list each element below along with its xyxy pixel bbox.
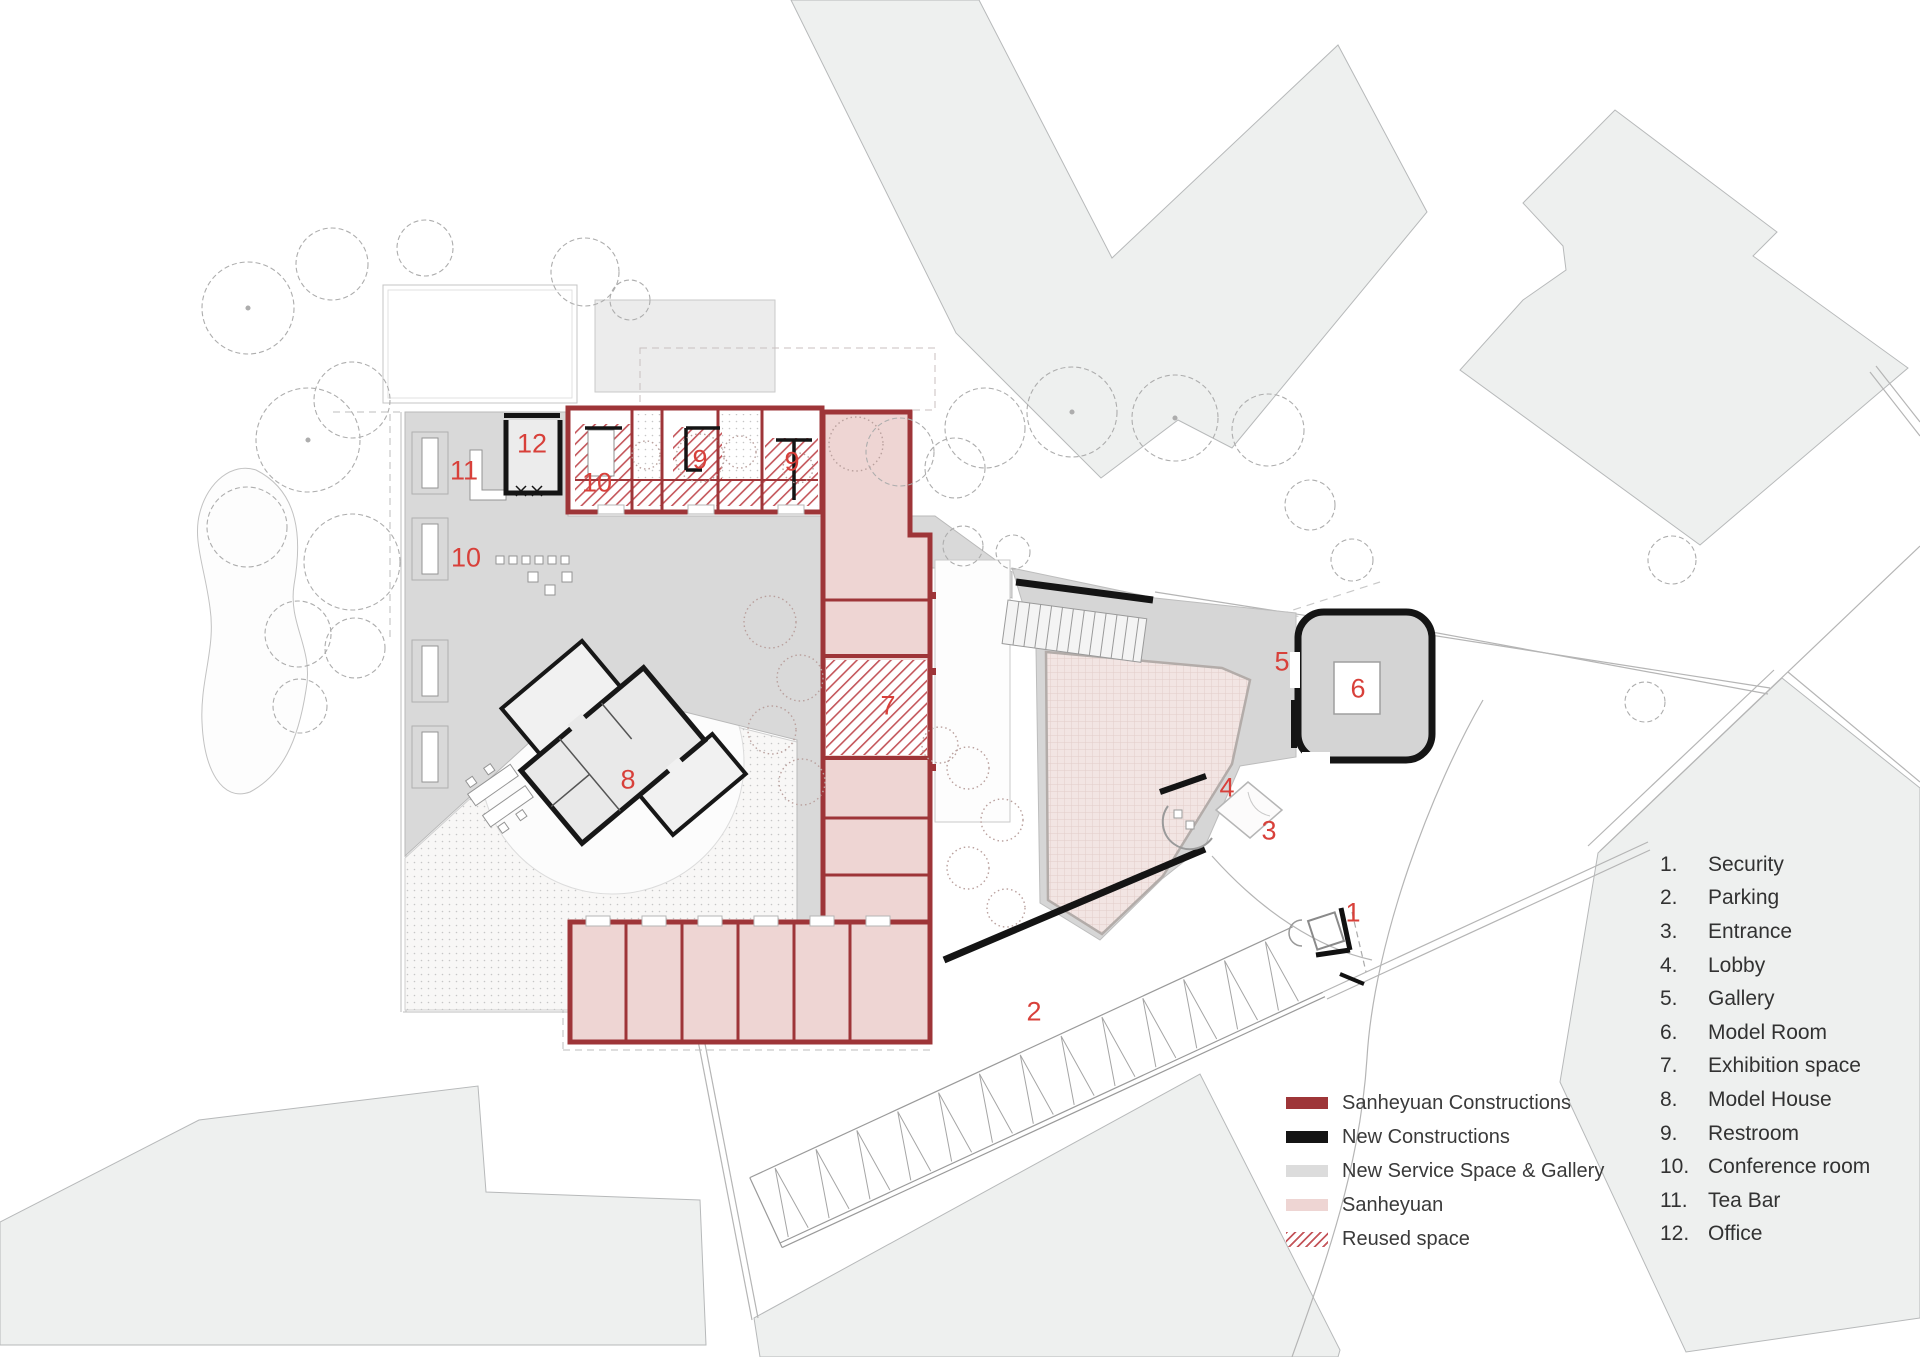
legend-label: Sanheyuan: [1342, 1194, 1443, 1217]
key-number: 4.: [1660, 954, 1708, 978]
plan-label-12: 12: [517, 431, 547, 458]
room-key-list: 1.Security2.Parking3.Entrance4.Lobby5.Ga…: [1660, 848, 1870, 1251]
plan-label-9: 9: [692, 447, 707, 474]
key-row-3: 3.Entrance: [1660, 915, 1870, 949]
key-row-10: 10.Conference room: [1660, 1150, 1870, 1184]
context-building-top-v: [791, 0, 1427, 478]
curved-road: [1292, 700, 1483, 1357]
key-label: Model House: [1708, 1088, 1832, 1112]
legend-swatch-sanheyuan: [1286, 1199, 1328, 1211]
key-row-4: 4.Lobby: [1660, 949, 1870, 983]
key-label: Conference room: [1708, 1155, 1870, 1179]
plan-label-6: 6: [1350, 676, 1365, 703]
plan-label-4: 4: [1219, 775, 1234, 802]
context-building-bottom-center: [754, 1074, 1340, 1357]
key-label: Office: [1708, 1222, 1762, 1246]
plan-label-11: 11: [450, 458, 478, 485]
key-row-5: 5.Gallery: [1660, 982, 1870, 1016]
key-label: Lobby: [1708, 954, 1765, 978]
legend-swatch-reused-space: [1286, 1232, 1328, 1247]
legend: Sanheyuan ConstructionsNew Constructions…: [1286, 1086, 1604, 1256]
key-row-8: 8.Model House: [1660, 1083, 1870, 1117]
legend-swatch-new-service-space-gallery: [1286, 1165, 1328, 1177]
context-building-top-right: [1460, 110, 1908, 545]
plan-label-7: 7: [880, 693, 895, 720]
key-number: 2.: [1660, 886, 1708, 910]
context-building-bottom-left: [0, 1086, 706, 1345]
key-number: 8.: [1660, 1088, 1708, 1112]
key-number: 9.: [1660, 1122, 1708, 1146]
key-row-2: 2.Parking: [1660, 882, 1870, 916]
legend-label: New Constructions: [1342, 1126, 1510, 1149]
key-number: 5.: [1660, 987, 1708, 1011]
legend-item-new-service-space-gallery: New Service Space & Gallery: [1286, 1154, 1604, 1188]
key-row-12: 12.Office: [1660, 1218, 1870, 1252]
site-plan-drawing: [0, 0, 1920, 1357]
sanheyuan-south-wing: [570, 916, 930, 1042]
plan-label-1: 1: [1345, 900, 1360, 927]
key-row-9: 9.Restroom: [1660, 1117, 1870, 1151]
key-number: 1.: [1660, 853, 1708, 877]
plan-label-9: 9: [784, 449, 799, 476]
site-plan-canvas: 123456789910101112 Sanheyuan Constructio…: [0, 0, 1920, 1357]
plan-label-3: 3: [1261, 818, 1276, 845]
key-label: Gallery: [1708, 987, 1775, 1011]
key-label: Model Room: [1708, 1021, 1827, 1045]
key-number: 11.: [1660, 1189, 1708, 1213]
key-label: Restroom: [1708, 1122, 1799, 1146]
key-number: 12.: [1660, 1222, 1708, 1246]
key-number: 10.: [1660, 1155, 1708, 1179]
key-row-6: 6.Model Room: [1660, 1016, 1870, 1050]
legend-label: Reused space: [1342, 1228, 1470, 1251]
legend-swatch-new-constructions: [1286, 1131, 1328, 1143]
plan-label-2: 2: [1026, 999, 1041, 1026]
gallery-boundary-lower: [1432, 632, 1768, 694]
pond-outline: [197, 468, 307, 794]
key-number: 3.: [1660, 920, 1708, 944]
sanheyuan-east-wing: [823, 412, 930, 925]
east-walkway: [929, 560, 1010, 822]
plan-label-5: 5: [1274, 649, 1289, 676]
key-row-7: 7.Exhibition space: [1660, 1050, 1870, 1084]
key-number: 6.: [1660, 1021, 1708, 1045]
key-label: Tea Bar: [1708, 1189, 1780, 1213]
legend-label: New Service Space & Gallery: [1342, 1160, 1604, 1183]
adjacent-roofs: [383, 285, 935, 410]
plan-label-10: 10: [451, 545, 481, 572]
key-row-11: 11.Tea Bar: [1660, 1184, 1870, 1218]
key-label: Security: [1708, 853, 1784, 877]
key-number: 7.: [1660, 1054, 1708, 1078]
key-row-1: 1.Security: [1660, 848, 1870, 882]
legend-item-sanheyuan: Sanheyuan: [1286, 1188, 1604, 1222]
legend-item-new-constructions: New Constructions: [1286, 1120, 1604, 1154]
legend-swatch-sanheyuan-constructions: [1286, 1097, 1328, 1109]
plan-label-10: 10: [582, 470, 612, 497]
key-label: Parking: [1708, 886, 1779, 910]
legend-item-sanheyuan-constructions: Sanheyuan Constructions: [1286, 1086, 1604, 1120]
legend-item-reused-space: Reused space: [1286, 1222, 1604, 1256]
plan-label-8: 8: [620, 767, 635, 794]
key-label: Exhibition space: [1708, 1054, 1861, 1078]
legend-label: Sanheyuan Constructions: [1342, 1092, 1571, 1115]
key-label: Entrance: [1708, 920, 1792, 944]
